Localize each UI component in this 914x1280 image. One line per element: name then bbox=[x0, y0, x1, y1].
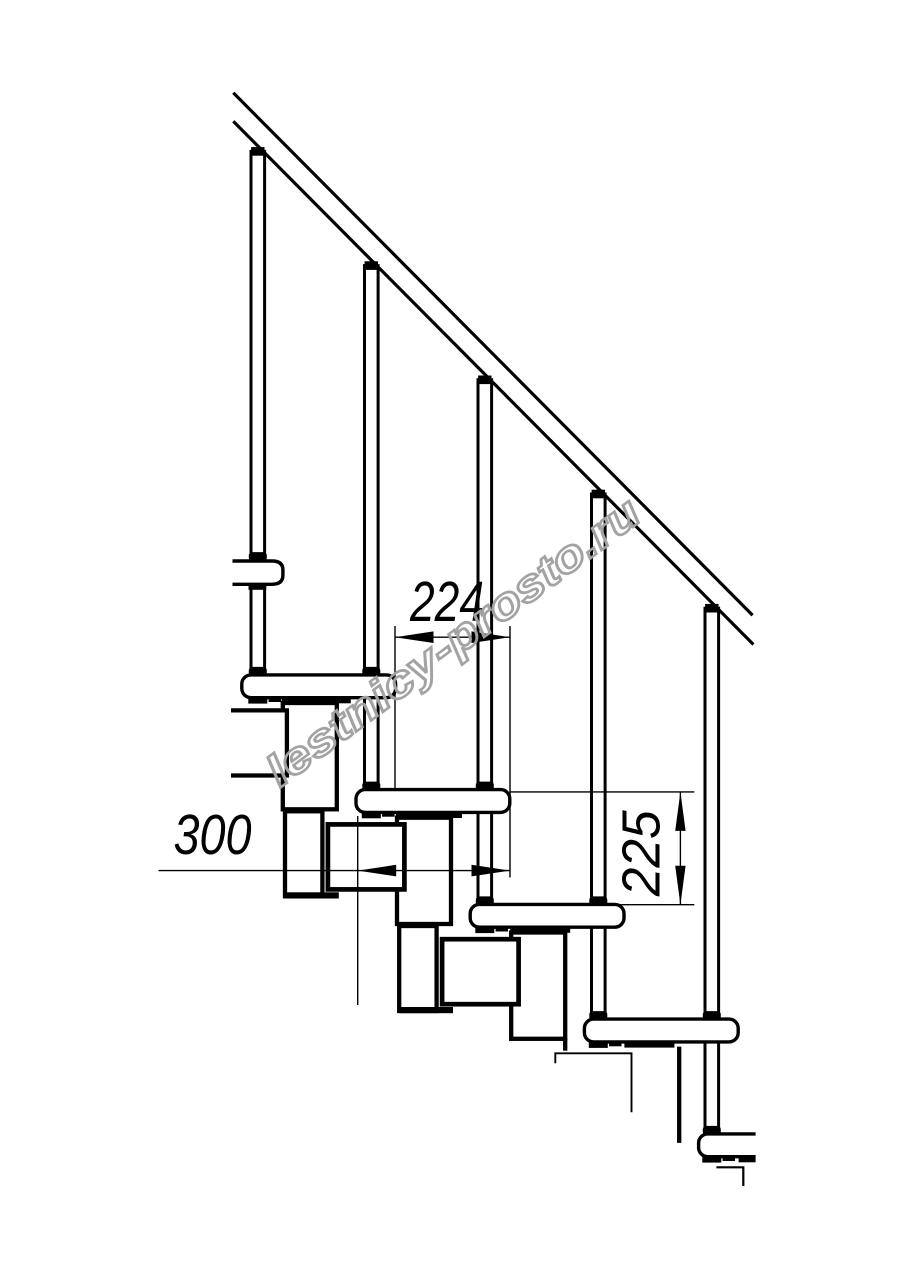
svg-text:300: 300 bbox=[174, 803, 252, 867]
svg-text:225: 225 bbox=[612, 809, 672, 897]
